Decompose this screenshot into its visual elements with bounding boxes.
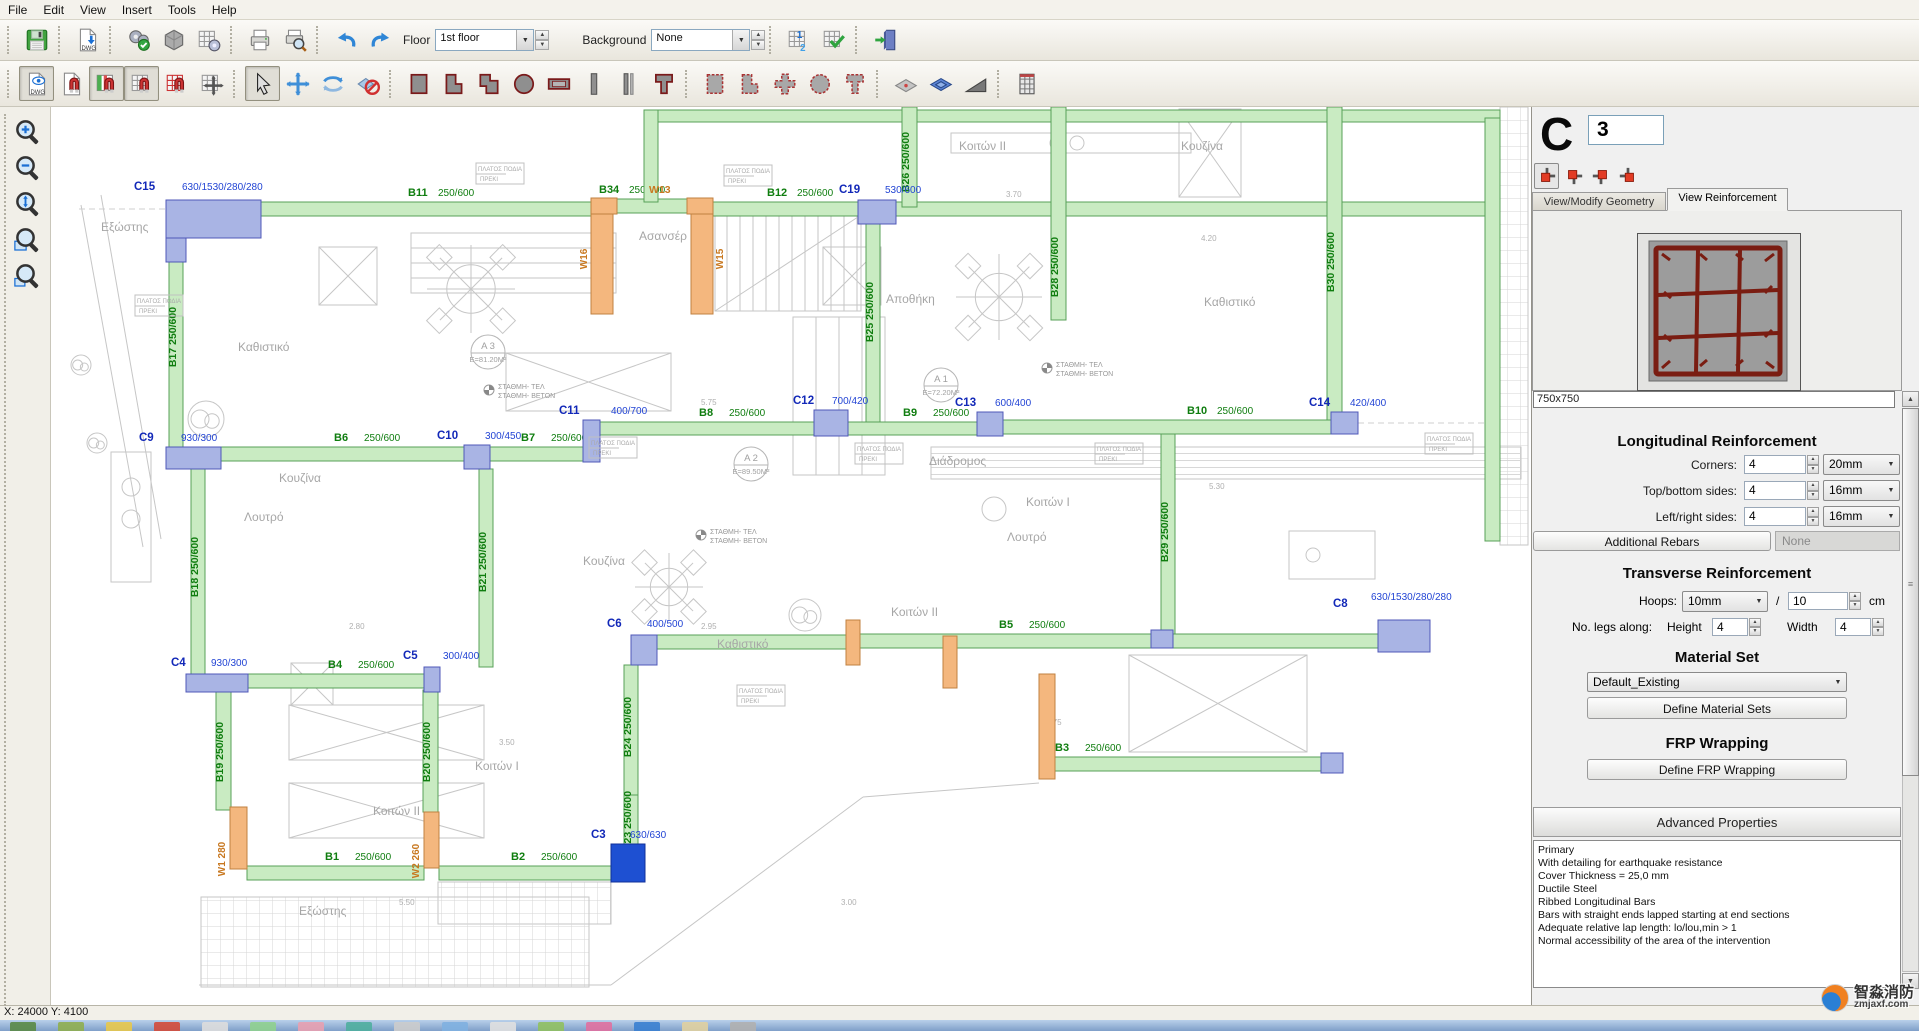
grid-gear-icon[interactable] <box>191 23 226 58</box>
svg-text:Διάδρομος: Διάδρομος <box>929 454 986 468</box>
grid-move-icon[interactable] <box>194 66 229 101</box>
slab-ramp-icon[interactable] <box>958 66 993 101</box>
taskbar-item[interactable] <box>586 1022 612 1031</box>
svg-text:ΠΛΑΤΟΣ ΠΟΔΙΑ: ΠΛΑΤΟΣ ΠΟΔΙΑ <box>478 167 522 173</box>
svg-text:B24 250/600: B24 250/600 <box>622 697 634 757</box>
column-C3[interactable] <box>611 844 645 882</box>
hoops-unit-label: cm <box>1869 594 1885 608</box>
define-frp-wrapping-button[interactable]: Define FRP Wrapping <box>1587 759 1847 780</box>
svg-text:ΣΤΑΘΜΗ- ΒΕΤΟΝ: ΣΤΑΘΜΗ- ΒΕΤΟΝ <box>498 393 555 400</box>
column-section-preview <box>1637 233 1801 391</box>
svg-text:250/600: 250/600 <box>729 408 766 419</box>
svg-text:420/400: 420/400 <box>1350 398 1387 409</box>
svg-text:930/300: 930/300 <box>181 433 218 444</box>
column-C4[interactable] <box>186 674 248 692</box>
svg-text:B11: B11 <box>408 187 428 199</box>
beam-B8[interactable] <box>600 422 814 435</box>
transverse-title: Transverse Reinforcement <box>1532 565 1902 582</box>
taskbar-item[interactable] <box>298 1022 324 1031</box>
legs-width-stepper[interactable]: ▲▼ <box>1872 618 1884 636</box>
svg-text:ΠΡΕΚΙ: ΠΡΕΚΙ <box>593 451 611 457</box>
svg-text:B18 250/600: B18 250/600 <box>189 537 201 597</box>
print-icon[interactable] <box>242 23 277 58</box>
legs-label: No. legs along: <box>1572 620 1652 634</box>
svg-text:B4: B4 <box>328 659 343 671</box>
corners-stepper[interactable]: ▲▼ <box>1807 455 1819 474</box>
legs-height-label: Height <box>1667 620 1702 634</box>
svg-text:DWG: DWG <box>81 46 96 52</box>
wall[interactable] <box>943 636 957 688</box>
corners-diameter-select[interactable]: 20mm▼ <box>1823 454 1900 475</box>
column-C14[interactable] <box>1331 412 1358 434</box>
column-C13[interactable] <box>977 412 1003 436</box>
drawing-toolbar: DWG <box>0 61 1919 107</box>
zoom-previous-icon[interactable] <box>9 258 47 293</box>
svg-text:630/630: 630/630 <box>630 830 667 841</box>
windows-taskbar[interactable] <box>0 1020 1919 1031</box>
drawing-canvas[interactable]: 4.205.303.705.753.505.503.001.752.952.80… <box>51 107 1531 1005</box>
svg-text:2: 2 <box>800 43 806 53</box>
chevron-down-icon: ▼ <box>1883 507 1899 526</box>
menu-edit[interactable]: Edit <box>35 1 72 19</box>
svg-text:Εξώστης: Εξώστης <box>101 220 149 234</box>
hoops-label: Hoops: <box>1592 594 1677 608</box>
svg-text:C14: C14 <box>1309 397 1331 409</box>
svg-text:C11: C11 <box>559 405 580 417</box>
orientation-icons <box>1534 163 1640 189</box>
svg-text:400/500: 400/500 <box>647 619 684 630</box>
zoom-extents-icon[interactable] <box>9 186 47 221</box>
taskbar-item[interactable] <box>634 1022 660 1031</box>
svg-text:B34: B34 <box>599 184 620 196</box>
move-icon[interactable] <box>280 66 315 101</box>
column-C10[interactable] <box>464 445 490 469</box>
floor-label: Floor <box>403 33 430 47</box>
material-set-title: Material Set <box>1532 649 1902 666</box>
taskbar-item[interactable] <box>682 1022 708 1031</box>
watermark-logo-icon <box>1821 984 1849 1012</box>
sec-cross-b-icon[interactable] <box>767 66 802 101</box>
svg-text:250/600: 250/600 <box>355 852 392 863</box>
tab-view-modify-geometry[interactable]: View/Modify Geometry <box>1532 192 1666 211</box>
beam[interactable] <box>1485 118 1500 541</box>
svg-text:Κουζίνα: Κουζίνα <box>279 471 321 485</box>
snap-grid-color-icon[interactable] <box>89 66 124 101</box>
define-material-sets-button[interactable]: Define Material Sets <box>1587 697 1847 719</box>
status-bar: X: 24000 Y: 4100 <box>0 1005 1919 1020</box>
floor-select[interactable]: 1st floor▼ <box>435 29 534 51</box>
orient-bottom-left-icon[interactable] <box>1534 163 1559 189</box>
redo-icon[interactable] <box>363 23 398 58</box>
frp-title: FRP Wrapping <box>1532 735 1902 752</box>
chevron-down-icon[interactable]: ▼ <box>732 30 749 50</box>
zoom-out-icon[interactable] <box>9 150 47 185</box>
hoops-spacing-input[interactable]: 10 <box>1788 592 1848 610</box>
svg-text:250/600: 250/600 <box>797 188 834 199</box>
svg-text:C5: C5 <box>403 650 418 662</box>
beam-B12[interactable] <box>713 202 858 216</box>
longitudinal-title: Longitudinal Reinforcement <box>1532 433 1902 450</box>
legs-height-input[interactable]: 4 <box>1712 618 1748 636</box>
svg-text:ΠΡΕΚΙ: ΠΡΕΚΙ <box>139 309 157 315</box>
svg-text:ΣΤΑΘΜΗ- ΤΕΛ: ΣΤΑΘΜΗ- ΤΕΛ <box>498 384 545 391</box>
wall-W15[interactable] <box>691 214 713 314</box>
undo-icon[interactable] <box>328 23 363 58</box>
wall-W16[interactable] <box>591 214 613 314</box>
taskbar-item[interactable] <box>730 1022 756 1031</box>
wall[interactable] <box>591 198 617 214</box>
column-C9[interactable] <box>166 447 221 469</box>
svg-text:ΣΤΑΘΜΗ- ΒΕΤΟΝ: ΣΤΑΘΜΗ- ΒΕΤΟΝ <box>1056 371 1113 378</box>
background-stepper[interactable]: ▲▼ <box>751 30 765 50</box>
watermark: 智淼消防zmjaxf.com <box>1821 984 1914 1012</box>
orient-bottom-right-icon[interactable] <box>1561 163 1586 189</box>
zoom-window-icon[interactable] <box>9 222 47 257</box>
sec-circle-icon[interactable] <box>506 66 541 101</box>
corners-label: Corners: <box>1532 458 1737 472</box>
svg-text:B2: B2 <box>511 851 525 863</box>
snap-grid-icon[interactable] <box>124 66 159 101</box>
svg-text:700/420: 700/420 <box>832 396 869 407</box>
zoom-in-icon[interactable] <box>9 114 47 149</box>
svg-text:630/1530/280/280: 630/1530/280/280 <box>1371 592 1452 603</box>
floor-plan[interactable]: 4.205.303.705.753.505.503.001.752.952.80… <box>51 107 1531 1005</box>
svg-text:A 2: A 2 <box>744 453 758 464</box>
svg-text:W1 280: W1 280 <box>217 841 228 876</box>
svg-text:B8: B8 <box>699 407 713 419</box>
export-dwg-icon[interactable]: DWG <box>70 23 105 58</box>
svg-text:B3: B3 <box>1055 742 1069 754</box>
svg-text:ΠΡΕΚΙ: ΠΡΕΚΙ <box>1429 447 1447 453</box>
beam-B9[interactable] <box>848 422 977 435</box>
svg-text:B29 250/600: B29 250/600 <box>1159 502 1171 562</box>
svg-text:E=81.20M²: E=81.20M² <box>470 355 507 364</box>
svg-text:250/600: 250/600 <box>438 188 475 199</box>
svg-text:Λουτρό: Λουτρό <box>244 510 284 524</box>
svg-text:B7: B7 <box>521 432 535 444</box>
svg-text:4.20: 4.20 <box>1201 234 1217 243</box>
hoops-diameter-select[interactable]: 10mm▼ <box>1682 591 1768 612</box>
sec-rect-icon[interactable] <box>401 66 436 101</box>
zoom-toolbar <box>0 107 51 1005</box>
reinforcement-preview-page <box>1532 210 1902 391</box>
material-set-select[interactable]: Default_Existing▼ <box>1587 672 1847 692</box>
svg-text:250/600: 250/600 <box>1085 743 1122 754</box>
svg-text:ΠΛΑΤΟΣ ΠΟΔΙΑ: ΠΛΑΤΟΣ ΠΟΔΙΑ <box>591 441 635 447</box>
menu-file[interactable]: File <box>0 1 35 19</box>
sec-bar2-icon[interactable] <box>611 66 646 101</box>
svg-text:B26 250/600: B26 250/600 <box>900 132 912 192</box>
taskbar-item[interactable] <box>250 1022 276 1031</box>
legs-width-label: Width <box>1787 620 1818 634</box>
chevron-down-icon: ▼ <box>1830 673 1846 691</box>
svg-text:C10: C10 <box>437 430 458 442</box>
svg-text:B9: B9 <box>903 407 917 419</box>
beam[interactable] <box>894 202 1485 216</box>
slab-flat-icon[interactable] <box>888 66 923 101</box>
svg-text:W2 260: W2 260 <box>411 843 422 878</box>
svg-text:ΠΛΑΤΟΣ ΠΟΔΙΑ: ΠΛΑΤΟΣ ΠΟΔΙΑ <box>726 169 770 175</box>
svg-text:630/1530/280/280: 630/1530/280/280 <box>182 182 263 193</box>
floor-check-icon[interactable] <box>816 23 851 58</box>
svg-text:1: 1 <box>797 30 803 41</box>
beam-B1[interactable] <box>247 866 424 880</box>
svg-text:E=72.20M²: E=72.20M² <box>923 388 960 397</box>
dwg-view-icon[interactable]: DWG <box>19 66 54 101</box>
svg-text:250/600: 250/600 <box>551 433 588 444</box>
column[interactable] <box>166 238 186 262</box>
svg-text:W16: W16 <box>579 248 590 269</box>
beam-B11[interactable] <box>258 202 591 216</box>
svg-text:Κοιτών II: Κοιτών II <box>959 139 1006 153</box>
taskbar-item[interactable] <box>58 1022 84 1031</box>
beam-B2[interactable] <box>439 866 611 880</box>
sec-tee-b-icon[interactable] <box>837 66 872 101</box>
sec-wall-icon[interactable] <box>541 66 576 101</box>
beam-B4[interactable] <box>248 674 424 688</box>
menu-help[interactable]: Help <box>204 1 245 19</box>
svg-text:B6: B6 <box>334 432 348 444</box>
tab-view-reinforcement[interactable]: View Reinforcement <box>1667 188 1788 211</box>
beam-B10[interactable] <box>1003 420 1331 434</box>
exit-door-icon[interactable] <box>867 23 902 58</box>
svg-text:300/400: 300/400 <box>443 651 480 662</box>
sec-rect-b-icon[interactable] <box>697 66 732 101</box>
column-C5[interactable] <box>424 667 440 692</box>
top-bottom-stepper[interactable]: ▲▼ <box>1807 481 1819 500</box>
svg-text:B28 250/600: B28 250/600 <box>1049 237 1061 297</box>
taskbar-item[interactable] <box>202 1022 228 1031</box>
svg-text:B30 250/600: B30 250/600 <box>1325 232 1337 292</box>
taskbar-item[interactable] <box>442 1022 468 1031</box>
column-C15[interactable] <box>166 200 261 238</box>
left-right-count-input[interactable]: 4 <box>1744 507 1806 526</box>
svg-text:Εξώστης: Εξώστης <box>299 904 347 918</box>
svg-text:C8: C8 <box>1333 598 1348 610</box>
section-size-field[interactable]: 750x750 <box>1533 391 1895 408</box>
background-select[interactable]: None▼ <box>651 29 750 51</box>
svg-text:Καθιστικό: Καθιστικό <box>717 637 769 651</box>
chevron-down-icon: ▼ <box>1883 481 1899 500</box>
svg-text:530/600: 530/600 <box>885 185 922 196</box>
svg-text:B20 250/600: B20 250/600 <box>421 722 433 782</box>
svg-text:B1: B1 <box>325 851 339 863</box>
legs-width-input[interactable]: 4 <box>1835 618 1871 636</box>
chevron-down-icon: ▼ <box>1751 592 1767 611</box>
svg-text:ΣΤΑΘΜΗ- ΤΕΛ: ΣΤΑΘΜΗ- ΤΕΛ <box>710 529 757 536</box>
taskbar-item[interactable] <box>490 1022 516 1031</box>
menu-tools[interactable]: Tools <box>160 1 204 19</box>
taskbar-item[interactable] <box>538 1022 564 1031</box>
column[interactable] <box>1321 753 1343 773</box>
svg-text:5.30: 5.30 <box>1209 482 1225 491</box>
svg-text:Κοιτών I: Κοιτών I <box>1026 495 1070 509</box>
svg-text:3.50: 3.50 <box>499 738 515 747</box>
column[interactable] <box>1151 630 1173 648</box>
left-right-diameter-select[interactable]: 16mm▼ <box>1823 506 1900 527</box>
svg-text:Κοιτών II: Κοιτών II <box>891 605 938 619</box>
svg-text:ΣΤΑΘΜΗ- ΒΕΤΟΝ: ΣΤΑΘΜΗ- ΒΕΤΟΝ <box>710 538 767 545</box>
settings-ok-icon[interactable] <box>121 23 156 58</box>
advanced-properties-text: Primary With detailing for earthquake re… <box>1533 840 1901 988</box>
left-right-label: Left/right sides: <box>1532 510 1737 524</box>
column-number-input[interactable]: 3 <box>1588 115 1664 145</box>
column-C19[interactable] <box>858 200 896 224</box>
advanced-properties-header[interactable]: Advanced Properties <box>1533 807 1901 837</box>
svg-text:ΣΤΑΘΜΗ- ΤΕΛ: ΣΤΑΘΜΗ- ΤΕΛ <box>1056 362 1103 369</box>
sec-circle-b-icon[interactable] <box>802 66 837 101</box>
delete-el-icon[interactable] <box>350 66 385 101</box>
svg-text:250/600: 250/600 <box>1029 620 1066 631</box>
dwg-snap-icon[interactable] <box>54 66 89 101</box>
wall[interactable] <box>846 620 860 665</box>
sec-l-icon[interactable] <box>436 66 471 101</box>
menu-view[interactable]: View <box>72 1 114 19</box>
svg-text:ΠΡΕΚΙ: ΠΡΕΚΙ <box>859 457 877 463</box>
scroll-up-button[interactable]: ▲ <box>1902 391 1919 407</box>
additional-rebars-button[interactable]: Additional Rebars <box>1533 531 1771 551</box>
wall-W1[interactable] <box>230 807 247 869</box>
column-C8[interactable] <box>1378 620 1430 652</box>
svg-text:C13: C13 <box>955 397 976 409</box>
svg-text:B21 250/600: B21 250/600 <box>477 532 489 592</box>
sec-bar-icon[interactable] <box>576 66 611 101</box>
floor-stepper[interactable]: ▲▼ <box>535 30 549 50</box>
svg-text:A 1: A 1 <box>934 374 948 385</box>
wall-W2[interactable] <box>424 812 439 868</box>
rotate-icon[interactable] <box>315 66 350 101</box>
svg-text:400/700: 400/700 <box>611 406 648 417</box>
svg-text:Ασανσέρ: Ασανσέρ <box>639 229 687 243</box>
legs-height-stepper[interactable]: ▲▼ <box>1749 618 1761 636</box>
svg-text:ΠΛΑΤΟΣ ΠΟΔΙΑ: ΠΛΑΤΟΣ ΠΟΔΙΑ <box>1097 447 1141 453</box>
wall[interactable] <box>1039 674 1055 779</box>
svg-text:250/600: 250/600 <box>541 852 578 863</box>
wall[interactable] <box>687 198 713 214</box>
top-bottom-diameter-select[interactable]: 16mm▼ <box>1823 480 1900 501</box>
properties-panel: C 3 View/Modify Geometry View Reinforcem… <box>1531 107 1919 1005</box>
cursor-coordinates: X: 24000 Y: 4100 <box>4 1006 88 1018</box>
beam-B5[interactable] <box>860 634 1378 648</box>
svg-text:Κουζίνα: Κουζίνα <box>583 554 625 568</box>
svg-text:300/450: 300/450 <box>485 431 522 442</box>
building-3d-icon[interactable] <box>1009 66 1044 101</box>
hoops-separator: / <box>1776 594 1779 608</box>
snap-grid-red-icon[interactable] <box>159 66 194 101</box>
svg-text:Κουζίνα: Κουζίνα <box>1181 139 1223 153</box>
save-icon[interactable] <box>19 23 54 58</box>
beam[interactable] <box>644 110 1500 122</box>
chevron-down-icon: ▼ <box>1883 455 1899 474</box>
svg-text:930/300: 930/300 <box>211 658 248 669</box>
main-toolbar: DWG Floor 1st floor▼ ▲▼ Background None▼… <box>0 20 1919 61</box>
hoops-spacing-stepper[interactable]: ▲▼ <box>1849 592 1861 610</box>
svg-text:C3: C3 <box>591 829 606 841</box>
sec-l-b-icon[interactable] <box>732 66 767 101</box>
svg-text:Κοιτών II: Κοιτών II <box>373 804 420 818</box>
sec-tee-icon[interactable] <box>646 66 681 101</box>
svg-text:2.80: 2.80 <box>349 622 365 631</box>
svg-text:C4: C4 <box>171 657 186 669</box>
svg-text:Καθιστικό: Καθιστικό <box>1204 295 1256 309</box>
svg-text:3.00: 3.00 <box>841 898 857 907</box>
column-C6[interactable] <box>631 635 657 665</box>
svg-text:DWG: DWG <box>30 89 45 95</box>
svg-text:B19 250/600: B19 250/600 <box>214 722 226 782</box>
orient-top-left-icon[interactable] <box>1615 163 1640 189</box>
svg-text:W15: W15 <box>715 248 726 269</box>
sec-step-icon[interactable] <box>471 66 506 101</box>
svg-text:5.50: 5.50 <box>399 898 415 907</box>
svg-text:C15: C15 <box>134 181 156 193</box>
additional-rebars-value: None <box>1775 531 1900 551</box>
beam-B6[interactable] <box>221 447 464 461</box>
svg-text:C12: C12 <box>793 395 814 407</box>
svg-text:2.95: 2.95 <box>701 622 717 631</box>
svg-text:B10: B10 <box>1187 405 1207 417</box>
svg-text:C6: C6 <box>607 618 622 630</box>
column-type-label: C <box>1540 107 1573 161</box>
taskbar-item[interactable] <box>154 1022 180 1031</box>
left-right-stepper[interactable]: ▲▼ <box>1807 507 1819 526</box>
svg-text:250/600: 250/600 <box>358 660 395 671</box>
slab-drop-icon[interactable] <box>923 66 958 101</box>
svg-text:ΠΡΕΚΙ: ΠΡΕΚΙ <box>1099 457 1117 463</box>
svg-text:ΠΡΕΚΙ: ΠΡΕΚΙ <box>728 179 746 185</box>
svg-text:C19: C19 <box>839 184 860 196</box>
corners-count-input[interactable]: 4 <box>1744 455 1806 474</box>
svg-text:ΠΛΑΤΟΣ ΠΟΔΙΑ: ΠΛΑΤΟΣ ΠΟΔΙΑ <box>857 447 901 453</box>
top-bottom-count-input[interactable]: 4 <box>1744 481 1806 500</box>
print-preview-icon[interactable] <box>277 23 312 58</box>
svg-text:5.75: 5.75 <box>701 398 717 407</box>
chevron-down-icon[interactable]: ▼ <box>516 30 533 50</box>
svg-text:Κοιτών I: Κοιτών I <box>475 759 519 773</box>
svg-text:E=89.50M²: E=89.50M² <box>733 467 770 476</box>
background-label: Background <box>582 33 646 47</box>
svg-text:ΠΛΑΤΟΣ ΠΟΔΙΑ: ΠΛΑΤΟΣ ΠΟΔΙΑ <box>739 689 783 695</box>
taskbar-item[interactable] <box>394 1022 420 1031</box>
svg-text:Λουτρό: Λουτρό <box>1007 530 1047 544</box>
beam-B7[interactable] <box>490 447 583 461</box>
orient-top-right-icon[interactable] <box>1588 163 1613 189</box>
taskbar-item[interactable] <box>106 1022 132 1031</box>
column-C12[interactable] <box>814 410 848 436</box>
menu-insert[interactable]: Insert <box>114 1 160 19</box>
taskbar-item[interactable] <box>346 1022 372 1031</box>
floor-renumber-icon[interactable]: 12 <box>781 23 816 58</box>
svg-text:ΠΡΕΚΙ: ΠΡΕΚΙ <box>741 699 759 705</box>
scrollbar-thumb[interactable] <box>1902 408 1919 776</box>
svg-text:Καθιστικό: Καθιστικό <box>238 340 290 354</box>
svg-text:250/600: 250/600 <box>933 408 970 419</box>
svg-text:B25 250/600: B25 250/600 <box>864 282 876 342</box>
select-icon[interactable] <box>245 66 280 101</box>
svg-text:C9: C9 <box>139 432 154 444</box>
svg-text:A 3: A 3 <box>481 341 495 352</box>
svg-text:W13: W13 <box>649 184 671 196</box>
svg-text:Αποθήκη: Αποθήκη <box>886 292 935 306</box>
menu-bar: File Edit View Insert Tools Help <box>0 0 1919 20</box>
beam-B3[interactable] <box>1055 757 1327 771</box>
svg-text:ΠΛΑΤΟΣ ΠΟΔΙΑ: ΠΛΑΤΟΣ ΠΟΔΙΑ <box>137 299 181 305</box>
cube-icon[interactable] <box>156 23 191 58</box>
svg-text:B12: B12 <box>767 187 787 199</box>
svg-text:B23 250/600: B23 250/600 <box>622 791 634 851</box>
svg-text:ΠΡΕΚΙ: ΠΡΕΚΙ <box>480 177 498 183</box>
svg-text:250/600: 250/600 <box>364 433 401 444</box>
taskbar-item[interactable] <box>10 1022 36 1031</box>
